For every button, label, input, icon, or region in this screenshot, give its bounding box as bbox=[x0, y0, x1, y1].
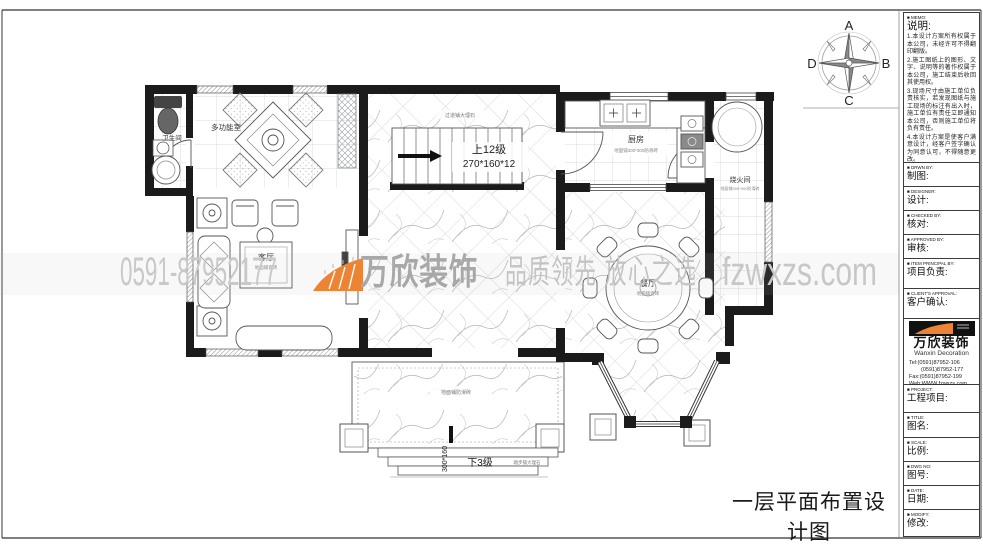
drawing-title: 一层平面布置设计图 bbox=[718, 486, 900, 549]
field-item-principal: ITEM PRINCIPAL BY: 项目负责: bbox=[904, 259, 979, 289]
note-corridor: 过道铺大理石 bbox=[445, 112, 475, 119]
sink bbox=[600, 100, 650, 126]
compass-north: A bbox=[845, 18, 854, 33]
stairs-dims: 270*160*12 bbox=[463, 159, 516, 170]
label-dining: 餐厅 bbox=[640, 279, 656, 288]
memo-item: 3.现场尺寸由施工单位负责核实，若发现图纸与施工现场的标注有出入时，施工单位有责… bbox=[907, 89, 976, 134]
compass-rose: A B C D bbox=[807, 18, 890, 108]
living-room-furniture bbox=[197, 198, 358, 350]
field-project: PROJECT: 工程项目: bbox=[904, 385, 979, 413]
memo-item: 1.本设计方案所有权属于本公司，未经许可不得翻印翻版。 bbox=[907, 34, 976, 57]
memo-label: 说明: bbox=[907, 20, 976, 33]
memo-section: MEMO: 说明: 1.本设计方案所有权属于本公司，未经许可不得翻印翻版。 2.… bbox=[904, 13, 979, 163]
steps-note: 踏步铺大理石 bbox=[514, 459, 541, 466]
company-tel: Tel:(0591)87952-106 bbox=[907, 360, 976, 367]
label-living: 客厅 bbox=[258, 252, 274, 262]
drawing-sheet: 上12级 270*160*12 bbox=[0, 0, 983, 549]
company-fax: Fax:(0591)87952-199 bbox=[907, 374, 976, 381]
compass-east: B bbox=[882, 56, 891, 71]
memo-item: 2.施工图纸上的图形、文字、说明等的著作权属于本公司，施工结束后收回其使用权。 bbox=[907, 58, 976, 88]
field-designer: DESIGNER: 设计: bbox=[904, 187, 979, 211]
field-approved-by: APPROVED BY: 审核: bbox=[904, 235, 979, 259]
field-modify: MODIFY: 修改: bbox=[904, 510, 979, 536]
field-checked-by: CHECKED BY: 核对: bbox=[904, 211, 979, 235]
label-bathroom: 卫生间 bbox=[162, 133, 182, 142]
label-multi: 多功能室 bbox=[211, 122, 241, 132]
note-terrace: 地面铺防滑砖 bbox=[441, 389, 471, 396]
company-name-en: Wanxin Decoration bbox=[907, 350, 976, 358]
memo-item: 4.本设计方案是使客户满意设计，经客户签字确认为同意认可，不得随意更改。 bbox=[907, 135, 976, 165]
stairs-label: 上12级 bbox=[472, 143, 506, 156]
steps-label: 下3级 bbox=[467, 457, 493, 469]
steps-dims: 300*160 bbox=[442, 446, 449, 472]
field-date: DATE: 日期: bbox=[904, 486, 979, 510]
note-boiler: 地面铺300*300防滑砖 bbox=[721, 185, 760, 191]
note-dining: 地面铺瓷砖 bbox=[637, 290, 660, 297]
floor-plan: 上12级 270*160*12 bbox=[0, 0, 983, 549]
label-kitchen: 厨房 bbox=[628, 134, 644, 144]
note-kitchen: 地面铺300*300防滑砖 bbox=[614, 147, 658, 154]
field-title: TITLE: 图名: bbox=[904, 413, 979, 438]
stove bbox=[681, 116, 703, 167]
note-living: 地面铺瓷砖 bbox=[255, 264, 278, 271]
field-client-approval: CLIENT'S APPROVAL: 客户确认: bbox=[904, 289, 979, 319]
compass-south: C bbox=[844, 93, 853, 108]
field-drawn-by: DRWN BY: 制图: bbox=[904, 163, 979, 187]
company-tel2: (0591)87952-177 bbox=[907, 367, 976, 374]
field-scale: SCALE: 比例: bbox=[904, 438, 979, 462]
company-logo-icon bbox=[909, 321, 975, 336]
label-boiler: 烧火间 bbox=[730, 175, 751, 184]
field-dwg-no: DWG NO: 图号: bbox=[904, 462, 979, 486]
company-block: 万欣装饰 Wanxin Decoration Tel:(0591)87952-1… bbox=[904, 319, 979, 385]
company-name: 万欣装饰 bbox=[907, 336, 976, 350]
boiler-room-fixtures bbox=[712, 102, 762, 152]
staircase: 上12级 270*160*12 bbox=[392, 128, 528, 184]
title-block: MEMO: 说明: 1.本设计方案所有权属于本公司，未经许可不得翻印翻版。 2.… bbox=[903, 12, 980, 537]
compass-west: D bbox=[807, 56, 816, 71]
